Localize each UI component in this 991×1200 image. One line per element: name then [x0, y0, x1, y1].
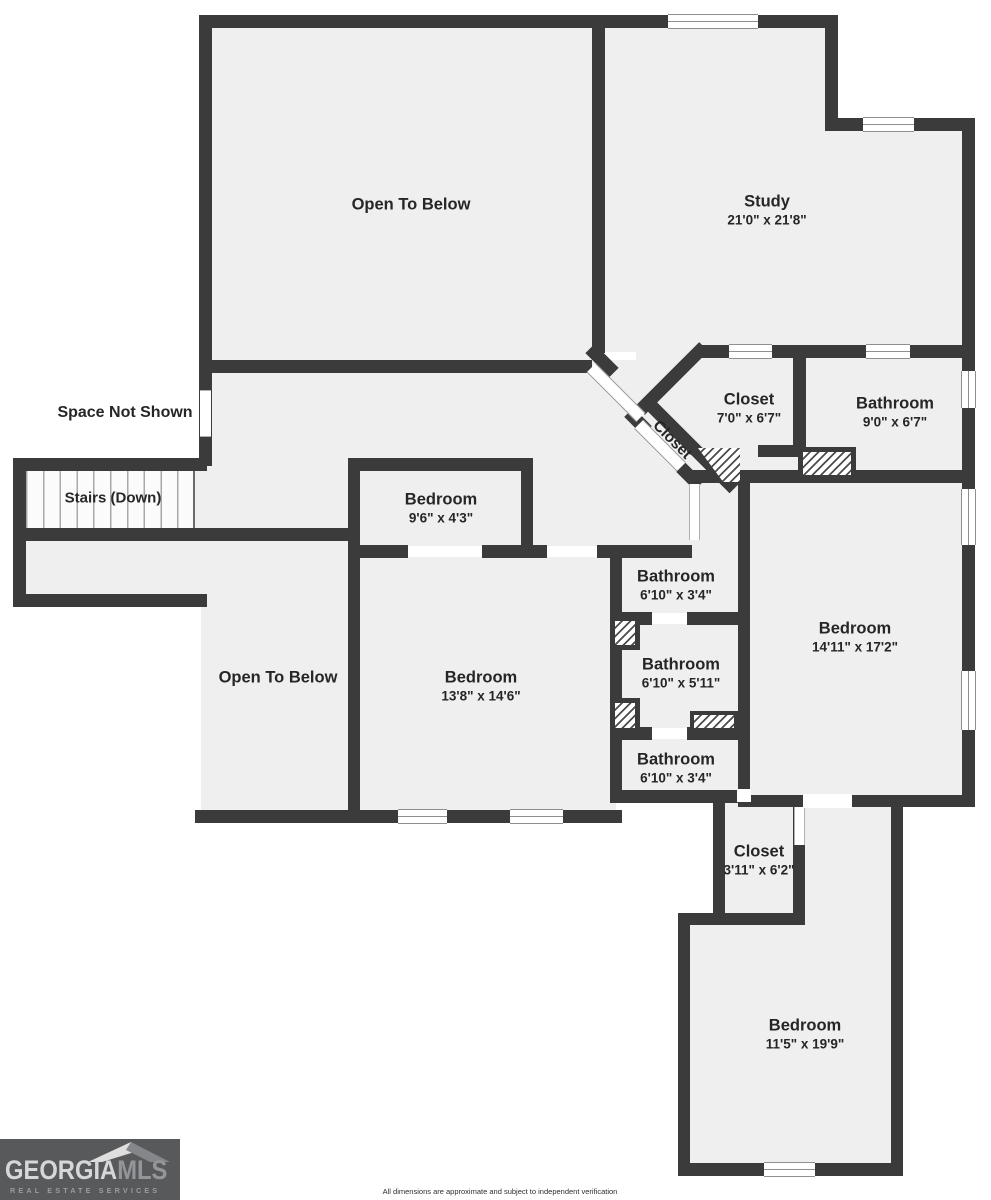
- wall: [891, 800, 903, 1175]
- logo-brand-text: GEORGIAMLS: [5, 1155, 167, 1186]
- room-name: Closet: [723, 841, 794, 862]
- window: [510, 809, 563, 824]
- wall: [521, 458, 533, 558]
- room-label-open-to-below-bottom: Open To Below: [219, 668, 338, 689]
- room-name: Study: [727, 191, 806, 212]
- annotation-text: Space Not Shown: [57, 404, 192, 421]
- floor-area: [832, 124, 968, 352]
- wall: [687, 612, 740, 625]
- room-name: Bathroom: [856, 393, 934, 414]
- room-label-open-to-below-top: Open To Below: [352, 195, 471, 216]
- door-opening: [652, 728, 687, 739]
- room-dimensions: 13'8" x 14'6": [441, 688, 520, 705]
- door-opening: [547, 546, 597, 557]
- bathtub-fixture: [798, 447, 856, 480]
- wall: [793, 345, 806, 457]
- wall: [738, 477, 750, 807]
- annotation-text: Stairs (Down): [65, 490, 162, 507]
- room-dimensions: 6'10" x 3'4": [637, 770, 715, 787]
- room-name: Open To Below: [352, 195, 471, 216]
- stairs-down-label: Stairs (Down): [65, 490, 162, 509]
- room-dimensions: 11'5" x 19'9": [766, 1036, 845, 1053]
- shower-fixture: [610, 698, 640, 733]
- window: [764, 1162, 815, 1177]
- room-name: Bedroom: [812, 618, 898, 639]
- room-name: Bathroom: [637, 749, 715, 770]
- door-opening: [652, 613, 687, 624]
- room-label-bedroom-mid: Bedroom 13'8" x 14'6": [441, 667, 520, 705]
- door-opening: [794, 807, 805, 845]
- room-label-closet-main: Closet 7'0" x 6'7": [717, 389, 781, 427]
- room-label-bathroom-c: Bathroom 6'10" x 3'4": [637, 749, 715, 787]
- room-dimensions: 6'10" x 3'4": [637, 587, 715, 604]
- room-dimensions: 9'0" x 6'7": [856, 414, 934, 431]
- wall: [592, 15, 605, 353]
- room-dimensions: 14'11" x 17'2": [812, 639, 898, 656]
- window: [398, 809, 447, 824]
- door-opening: [803, 794, 852, 808]
- room-name: Bathroom: [637, 566, 715, 587]
- room-name: Bedroom: [441, 667, 520, 688]
- wall: [13, 528, 360, 541]
- room-label-closet-bottom: Closet 3'11" x 6'2": [723, 841, 794, 879]
- floor-plan: Open To Below Study 21'0" x 21'8" Closet…: [0, 0, 991, 1200]
- room-name: Open To Below: [219, 668, 338, 689]
- window: [961, 489, 976, 545]
- room-dimensions: 3'11" x 6'2": [723, 862, 794, 879]
- room-name: Closet: [717, 389, 781, 410]
- vanity-fixture: [690, 711, 738, 732]
- space-not-shown-label: Space Not Shown: [57, 403, 192, 423]
- room-dimensions: 9'6" x 4'3": [405, 510, 477, 527]
- shower-fixture: [610, 616, 640, 650]
- room-label-bathroom-b: Bathroom 6'10" x 5'11": [642, 654, 721, 692]
- room-label-bathroom-a: Bathroom 6'10" x 3'4": [637, 566, 715, 604]
- door-opening: [689, 484, 700, 540]
- wall: [610, 545, 622, 803]
- window: [863, 117, 914, 132]
- georgia-mls-logo: GEORGIAMLS REAL ESTATE SERVICES: [0, 1139, 180, 1200]
- door-opening: [200, 390, 211, 437]
- room-dimensions: 6'10" x 5'11": [642, 675, 721, 692]
- wall: [199, 360, 592, 373]
- room-name: Bedroom: [405, 489, 477, 510]
- wall: [825, 15, 838, 131]
- door-opening: [408, 546, 482, 557]
- wall: [348, 458, 533, 471]
- wall: [13, 458, 207, 471]
- logo-brand-primary: GEORGIA: [5, 1155, 117, 1185]
- window: [961, 671, 976, 730]
- window: [866, 344, 910, 359]
- wall: [678, 913, 690, 1175]
- window: [668, 14, 758, 29]
- window: [729, 344, 772, 359]
- floor-area: [201, 598, 354, 816]
- disclaimer-text: All dimensions are approximate and subje…: [383, 1187, 618, 1196]
- room-name: Bedroom: [766, 1015, 845, 1036]
- wall: [13, 594, 207, 607]
- room-label-bedroom-bottom: Bedroom 11'5" x 19'9": [766, 1015, 845, 1053]
- door-opening: [737, 789, 751, 802]
- logo-brand-secondary: MLS: [117, 1155, 167, 1185]
- room-label-study: Study 21'0" x 21'8": [727, 191, 806, 229]
- wall: [348, 458, 360, 823]
- room-label-bedroom-right: Bedroom 14'11" x 17'2": [812, 618, 898, 656]
- window: [961, 371, 976, 408]
- logo-tagline: REAL ESTATE SERVICES: [10, 1186, 160, 1195]
- wall: [852, 795, 975, 807]
- room-name: Bathroom: [642, 654, 721, 675]
- wall: [354, 545, 408, 558]
- room-dimensions: 21'0" x 21'8": [727, 212, 806, 229]
- room-dimensions: 7'0" x 6'7": [717, 410, 781, 427]
- wall: [678, 913, 803, 925]
- room-label-bathroom-top: Bathroom 9'0" x 6'7": [856, 393, 934, 431]
- floor-area: [600, 20, 838, 352]
- wall: [482, 545, 547, 558]
- floor-area: [205, 360, 648, 467]
- room-label-bedroom-small: Bedroom 9'6" x 4'3": [405, 489, 477, 527]
- wall: [13, 458, 26, 607]
